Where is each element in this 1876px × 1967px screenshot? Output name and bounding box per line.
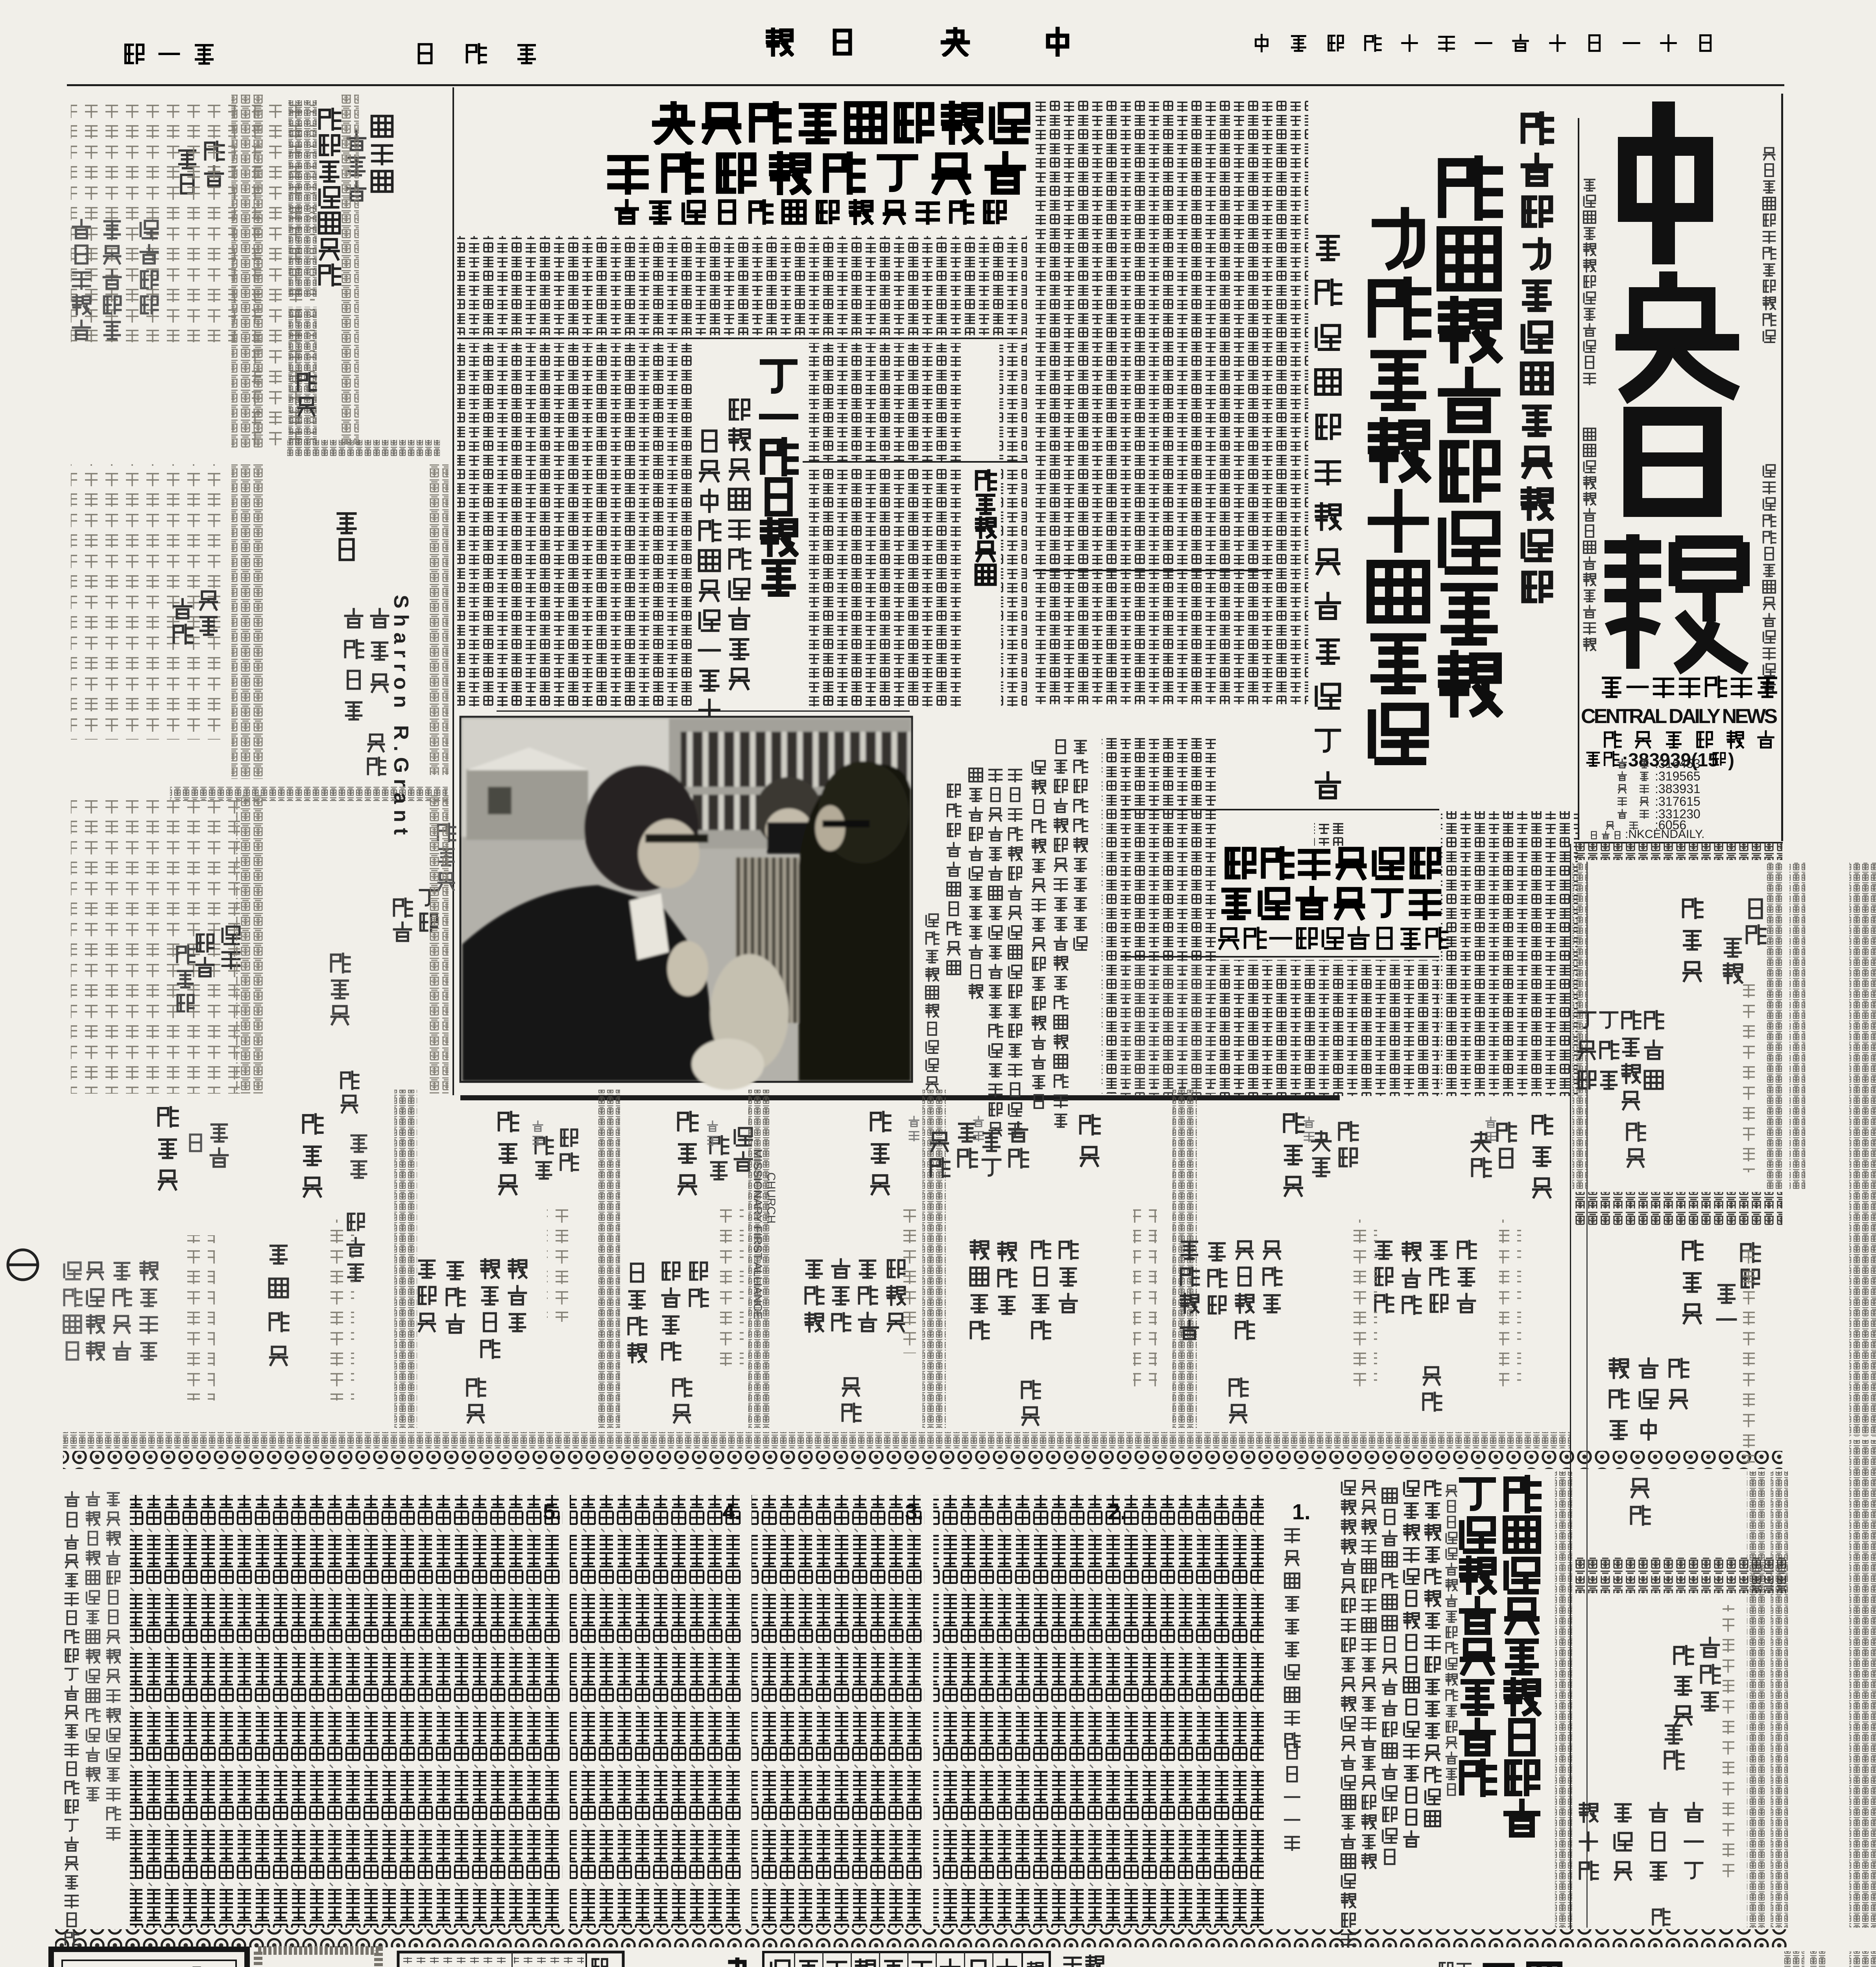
svg-text::NKCENDAILY.: :NKCENDAILY.	[1625, 828, 1704, 841]
svg-text::316453: :316453	[1655, 757, 1701, 771]
svg-text:2.: 2.	[1108, 1499, 1126, 1524]
svg-text::319565: :319565	[1655, 769, 1701, 783]
svg-text::317615: :317615	[1655, 794, 1701, 808]
svg-text:CENTRAL DAILY NEWS: CENTRAL DAILY NEWS	[1581, 705, 1778, 728]
svg-text:): )	[1728, 750, 1734, 771]
svg-text:1.: 1.	[1292, 1499, 1311, 1524]
svg-text:5.: 5.	[543, 1499, 561, 1524]
svg-text::383931: :383931	[1655, 782, 1701, 796]
svg-text:3.: 3.	[905, 1499, 923, 1524]
svg-text:4.: 4.	[722, 1499, 741, 1524]
